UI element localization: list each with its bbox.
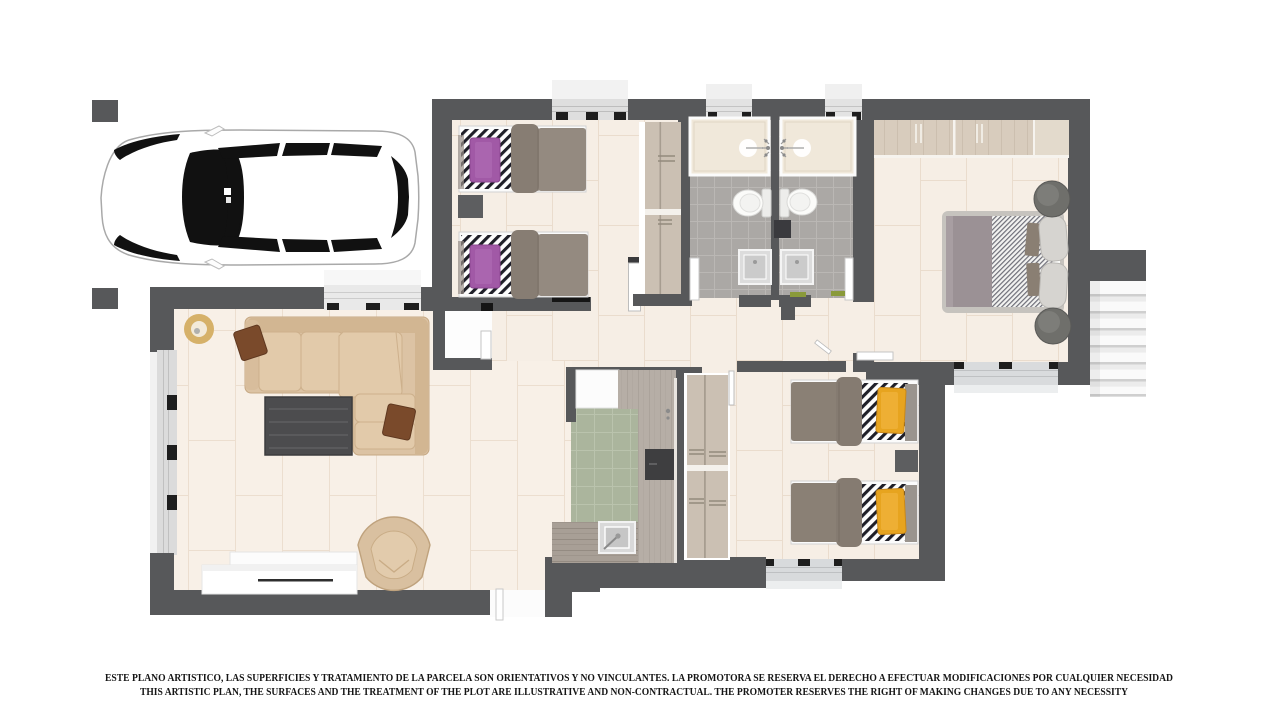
svg-text:THIS ARTISTIC PLAN, THE SURFAC: THIS ARTISTIC PLAN, THE SURFACES AND THE… bbox=[140, 687, 1129, 698]
svg-text:ESTE PLANO ARTISTICO, LAS SUPE: ESTE PLANO ARTISTICO, LAS SUPERFICIES Y … bbox=[105, 673, 1173, 684]
